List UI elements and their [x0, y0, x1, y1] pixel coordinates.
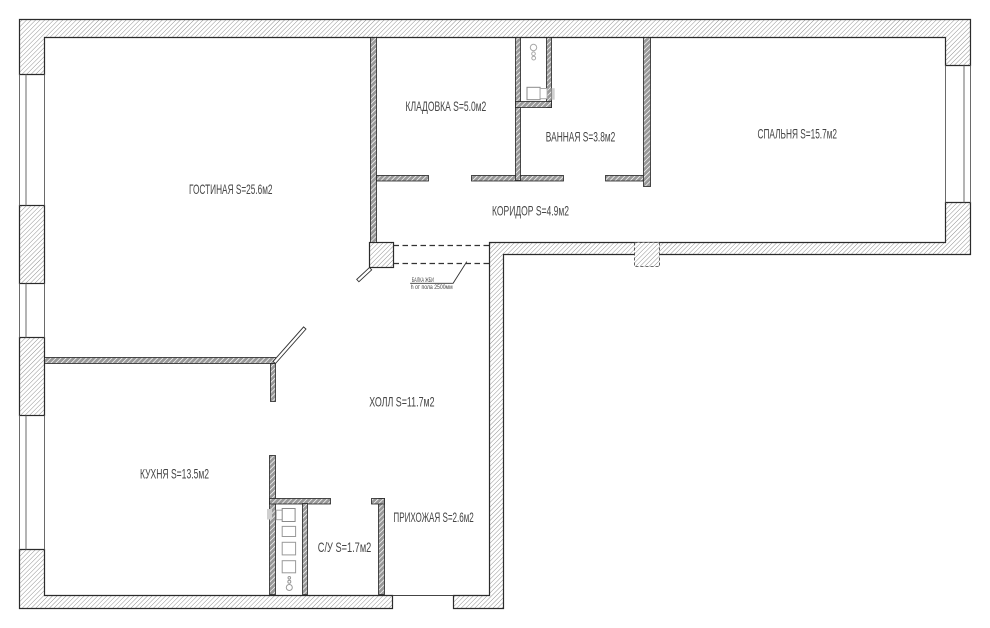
svg-text:С/У S=1.7м2: С/У S=1.7м2	[318, 540, 372, 555]
svg-text:ПРИХОЖАЯ S=2.6м2: ПРИХОЖАЯ S=2.6м2	[393, 510, 473, 525]
svg-text:h от пола 2500мм: h от пола 2500мм	[411, 284, 453, 291]
svg-text:ГОСТИНАЯ S=25.6м2: ГОСТИНАЯ S=25.6м2	[189, 182, 273, 197]
svg-text:КЛАДОВКА S=5.0м2: КЛАДОВКА S=5.0м2	[406, 99, 487, 114]
svg-text:КОРИДОР S=4.9м2: КОРИДОР S=4.9м2	[492, 204, 569, 219]
svg-text:ВАННАЯ S=3.8м2: ВАННАЯ S=3.8м2	[546, 130, 616, 145]
svg-text:СПАЛЬНЯ S=15.7м2: СПАЛЬНЯ S=15.7м2	[758, 127, 838, 142]
svg-text:КУХНЯ S=13.5м2: КУХНЯ S=13.5м2	[140, 466, 209, 481]
svg-text:БАЛКА ЖБИ: БАЛКА ЖБИ	[412, 277, 434, 284]
svg-text:ХОЛЛ S=11.7м2: ХОЛЛ S=11.7м2	[369, 394, 434, 409]
